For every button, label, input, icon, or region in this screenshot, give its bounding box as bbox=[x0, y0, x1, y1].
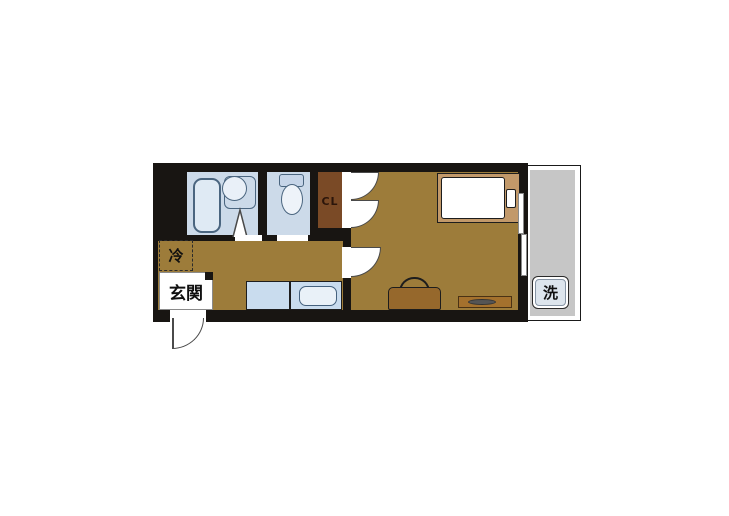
floor-plan: CL 冷 玄関 洗 bbox=[0, 0, 729, 516]
counter-divider bbox=[289, 282, 291, 309]
washing-machine-label: 洗 bbox=[543, 282, 558, 303]
closet-door-track bbox=[342, 172, 351, 230]
bedroom-door-opening bbox=[342, 247, 351, 278]
bathroom-door-icon bbox=[228, 205, 252, 238]
wall-segment bbox=[318, 228, 351, 241]
washing-machine: 洗 bbox=[532, 276, 569, 309]
window-pane bbox=[518, 193, 524, 234]
washbasin bbox=[222, 176, 247, 201]
closet: CL bbox=[318, 172, 342, 230]
refrigerator-space: 冷 bbox=[159, 240, 193, 271]
remote-item bbox=[468, 299, 496, 305]
bag bbox=[388, 287, 441, 310]
bathtub bbox=[193, 178, 221, 233]
kitchen-sink bbox=[299, 286, 337, 306]
wall-segment bbox=[205, 272, 213, 280]
entrance-door-swing-icon bbox=[172, 318, 204, 349]
washing-machine-body: 洗 bbox=[535, 279, 566, 306]
closet-label: CL bbox=[321, 195, 338, 208]
refrigerator-label: 冷 bbox=[168, 245, 183, 266]
toilet-bowl bbox=[281, 184, 303, 215]
entrance-label: 玄関 bbox=[169, 279, 203, 304]
window-pane bbox=[521, 234, 527, 276]
bed-mattress bbox=[441, 177, 505, 219]
bed-pillow bbox=[506, 189, 516, 208]
